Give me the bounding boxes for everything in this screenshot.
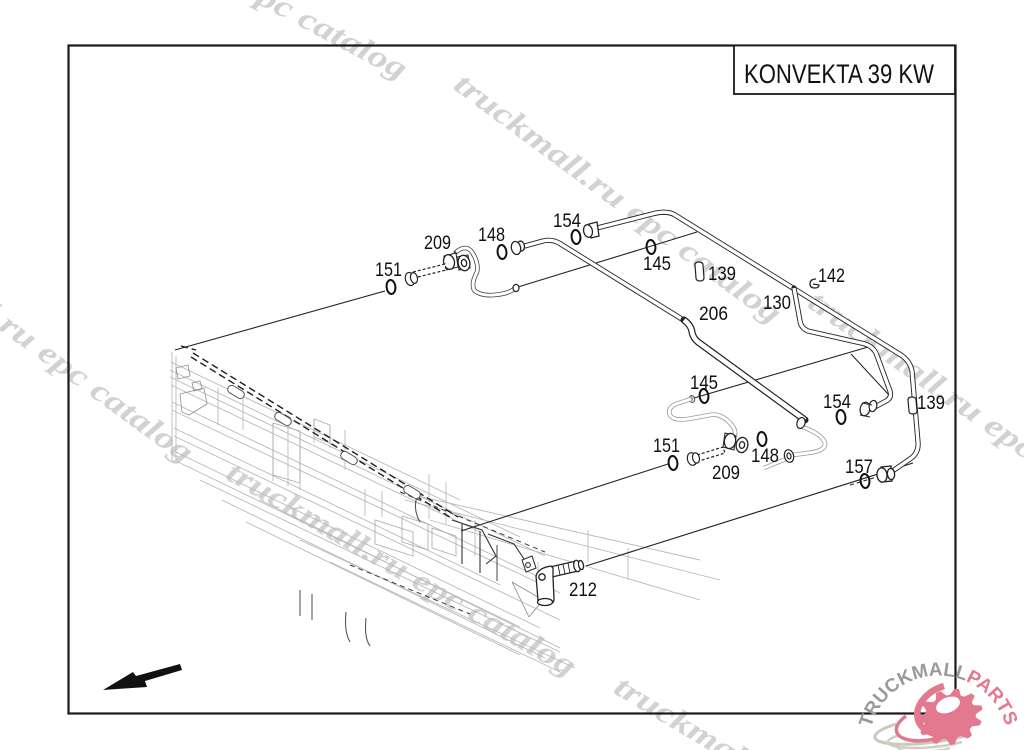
svg-text:148: 148 bbox=[751, 445, 779, 467]
svg-text:145: 145 bbox=[643, 253, 671, 275]
svg-text:154: 154 bbox=[553, 210, 581, 232]
svg-text:151: 151 bbox=[653, 435, 680, 457]
svg-text:130: 130 bbox=[763, 292, 791, 314]
svg-text:142: 142 bbox=[818, 265, 845, 287]
svg-text:151: 151 bbox=[375, 259, 402, 281]
svg-text:truckmall.ru epc catalog: truckmall.ru epc catalog bbox=[46, 0, 414, 86]
svg-text:KONVEKTA 39 KW: KONVEKTA 39 KW bbox=[744, 59, 934, 89]
svg-text:truckmall.ru epc catalog: truckmall.ru epc catalog bbox=[0, 207, 200, 469]
svg-text:206: 206 bbox=[699, 303, 728, 325]
svg-text:truckmall.ru epc catalog: truckmall.ru epc catalog bbox=[448, 65, 789, 330]
svg-text:139: 139 bbox=[917, 392, 945, 414]
svg-text:145: 145 bbox=[690, 372, 718, 394]
svg-text:157: 157 bbox=[845, 456, 873, 478]
svg-text:154: 154 bbox=[823, 391, 851, 413]
svg-text:148: 148 bbox=[478, 224, 505, 246]
svg-text:139: 139 bbox=[708, 263, 736, 285]
svg-text:209: 209 bbox=[424, 232, 451, 254]
svg-text:209: 209 bbox=[712, 462, 740, 484]
svg-text:212: 212 bbox=[569, 579, 597, 601]
